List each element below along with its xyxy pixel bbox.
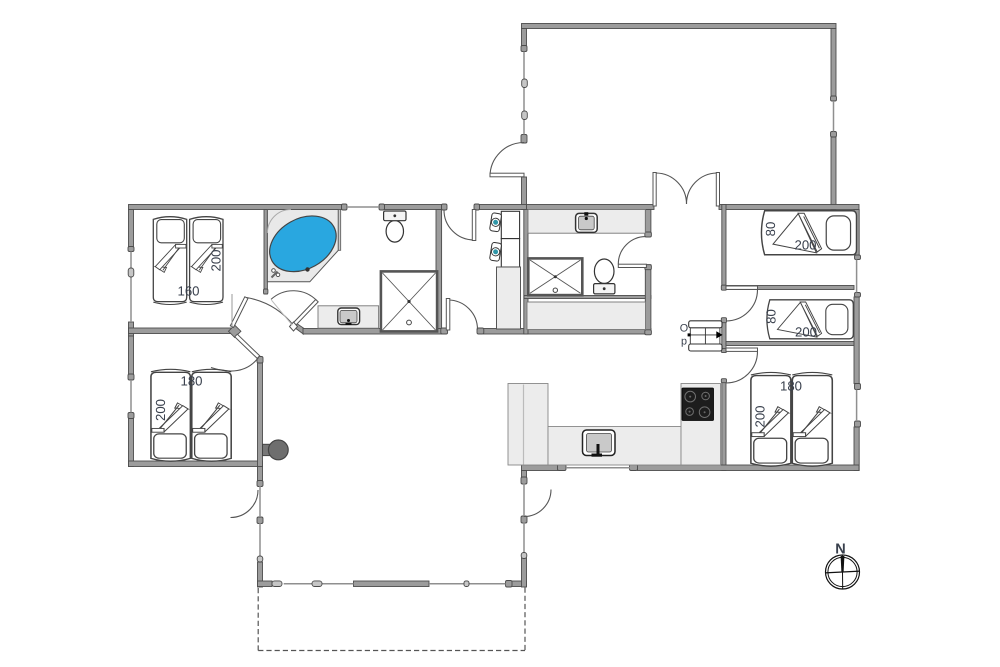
svg-text:160: 160 [177, 284, 199, 299]
svg-text:200: 200 [795, 324, 817, 339]
svg-text:180: 180 [180, 373, 202, 388]
svg-text:p: p [681, 335, 687, 347]
svg-text:80: 80 [763, 222, 778, 237]
svg-text:200: 200 [752, 405, 767, 427]
svg-text:80: 80 [763, 309, 778, 324]
svg-text:N: N [835, 542, 845, 558]
svg-text:200: 200 [794, 237, 816, 252]
svg-text:O: O [680, 322, 688, 334]
svg-text:200: 200 [209, 249, 224, 271]
svg-text:200: 200 [153, 399, 168, 421]
svg-text:180: 180 [780, 378, 802, 393]
